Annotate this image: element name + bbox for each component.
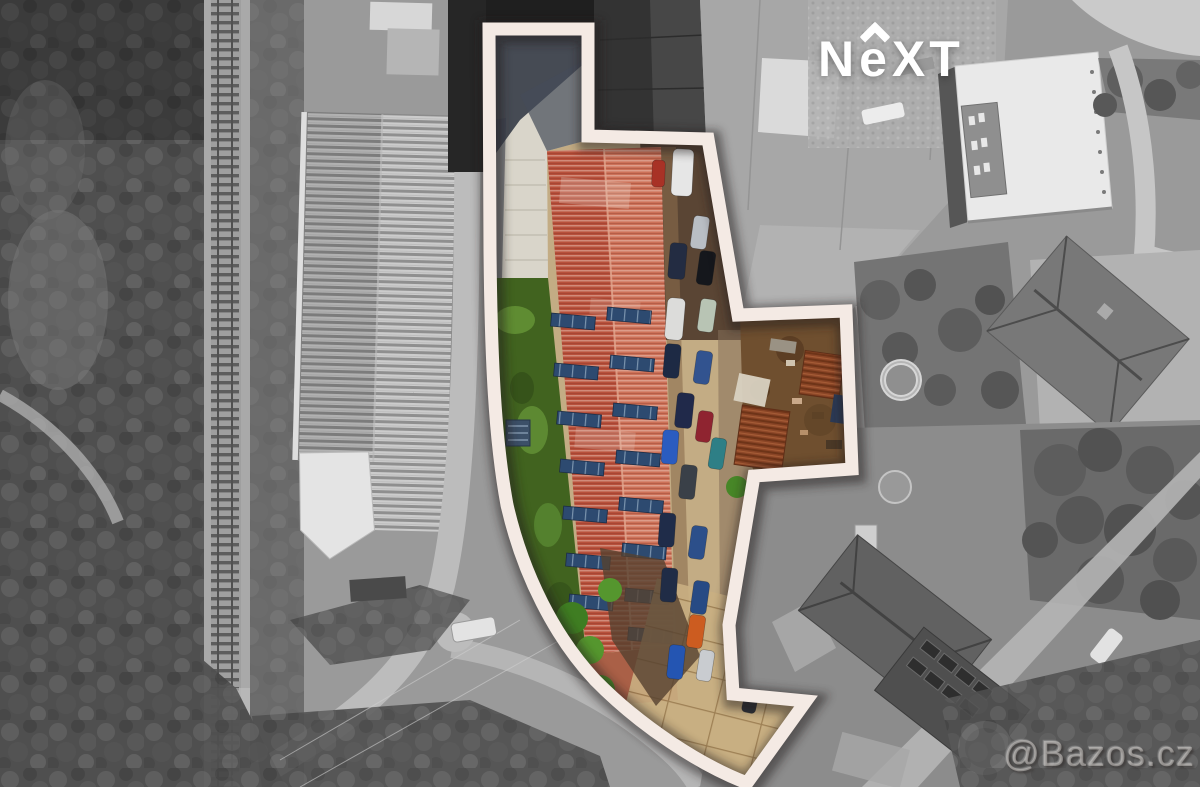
logo-letter-e-wrap: e xyxy=(859,34,891,84)
logo-letters-xt: XT xyxy=(892,34,964,84)
aerial-property-photo: N e XT @Bazos.cz xyxy=(0,0,1200,787)
aerial-scene xyxy=(0,0,1200,787)
right-garden xyxy=(854,242,1026,448)
white-building-topright xyxy=(938,52,1112,228)
next-logo: N e XT xyxy=(818,34,964,84)
bazos-watermark: @Bazos.cz xyxy=(1003,733,1195,775)
logo-letter-n: N xyxy=(818,34,858,84)
water-tank xyxy=(879,471,911,503)
